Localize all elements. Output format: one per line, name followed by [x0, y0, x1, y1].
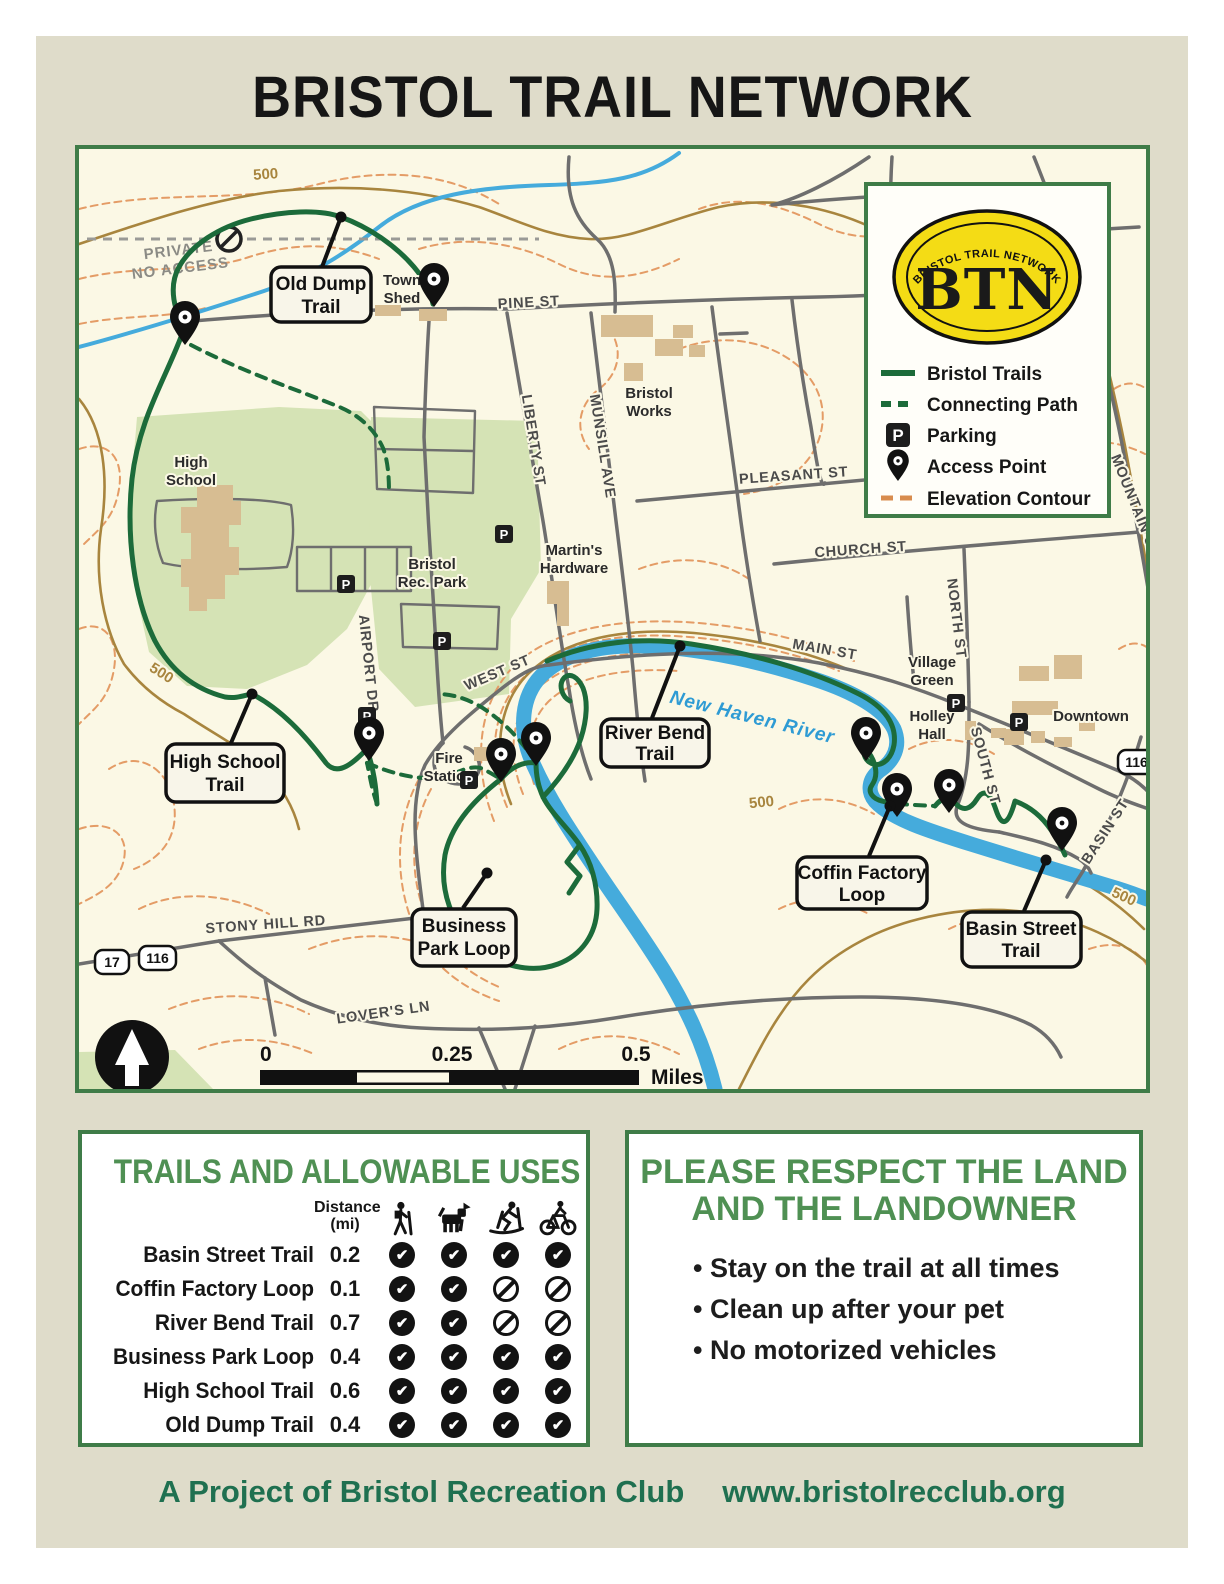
svg-text:P: P [952, 696, 961, 711]
trails-uses-box: TRAILS AND ALLOWABLE USES Distance (mi) [78, 1130, 590, 1447]
svg-text:Fire: Fire [435, 750, 463, 767]
svg-text:Martin's: Martin's [546, 542, 603, 559]
svg-text:Park Loop: Park Loop [418, 939, 511, 960]
svg-text:Hardware: Hardware [540, 560, 608, 577]
use-mark [545, 1412, 571, 1438]
munsill-ave-label: MUNSILL AVE [586, 393, 618, 499]
parking-icon: P [1010, 713, 1028, 731]
north-arrow [95, 1020, 169, 1089]
svg-text:Works: Works [626, 403, 672, 420]
svg-text:P: P [500, 527, 509, 542]
svg-text:Parking: Parking [927, 426, 997, 447]
svg-text:P: P [892, 426, 903, 445]
svg-text:Hall: Hall [918, 726, 946, 743]
table-row-name: Business Park Loop [107, 1344, 314, 1370]
parking-icon: P [947, 694, 965, 712]
cross-country-skiing-icon [480, 1197, 532, 1237]
access-point-pin [486, 738, 516, 782]
svg-text:Coffin Factory: Coffin Factory [798, 863, 927, 884]
svg-text:Trail: Trail [635, 744, 674, 765]
svg-text:Loop: Loop [839, 885, 885, 906]
svg-text:Elevation Contour: Elevation Contour [927, 489, 1091, 510]
svg-text:School: School [166, 472, 216, 489]
footer: A Project of Bristol Recreation Club www… [36, 1474, 1188, 1510]
route-116-badge: 116 [139, 946, 176, 970]
use-mark [545, 1310, 571, 1336]
hiking-icon [376, 1197, 428, 1237]
respect-box-heading: PLEASE RESPECT THE LAND AND THE LANDOWNE… [629, 1154, 1139, 1227]
svg-text:River Bend: River Bend [605, 723, 705, 744]
use-mark [441, 1276, 467, 1302]
use-mark [493, 1310, 519, 1336]
svg-text:Business: Business [422, 916, 506, 937]
svg-text:Basin Street: Basin Street [966, 919, 1078, 940]
route-116-badge: 116 [1118, 750, 1146, 774]
use-mark [493, 1276, 519, 1302]
trail-map: PRIVATE NO ACCESS [75, 145, 1150, 1093]
poster-title: BRISTOL TRAIL NETWORK [36, 64, 1188, 131]
trail-map-svg: PRIVATE NO ACCESS [79, 149, 1146, 1089]
poster-page: BRISTOL TRAIL NETWORK [0, 0, 1224, 1584]
table-row-name: River Bend Trail [107, 1310, 314, 1336]
parking-icon: P [886, 423, 910, 447]
btn-logo-acronym: BTN [915, 257, 1058, 323]
access-point-pin [851, 717, 881, 761]
list-item: No motorized vehicles [693, 1335, 1139, 1366]
table-row-name: Basin Street Trail [107, 1242, 314, 1268]
list-item: Clean up after your pet [693, 1294, 1139, 1325]
svg-text:P: P [1015, 715, 1024, 730]
pine-st-label: PINE ST [497, 293, 560, 312]
poster-title-text: BRISTOL TRAIL NETWORK [252, 64, 973, 131]
svg-text:Village: Village [908, 654, 956, 671]
svg-text:500: 500 [748, 793, 775, 813]
map-legend: BRISTOL TRAIL NETWORK BTN Bristol Trails… [866, 184, 1109, 516]
scale-bar: 0 0.25 0.5 Miles [260, 1043, 704, 1089]
use-mark [389, 1242, 415, 1268]
svg-text:Rec. Park: Rec. Park [398, 574, 467, 591]
svg-text:P: P [438, 634, 447, 649]
svg-text:116: 116 [146, 950, 169, 966]
svg-text:Trail: Trail [1001, 941, 1040, 962]
svg-text:Trail: Trail [205, 775, 244, 796]
svg-text:P: P [465, 773, 474, 788]
park-areas [79, 407, 541, 1089]
btn-logo: BRISTOL TRAIL NETWORK BTN [894, 211, 1080, 343]
svg-text:Green: Green [910, 672, 953, 689]
parking-icon: P [433, 632, 451, 650]
use-mark [441, 1412, 467, 1438]
old-dump-trail-callout: Old Dump Trail [271, 212, 371, 323]
svg-text:Trail: Trail [301, 297, 340, 318]
svg-text:Bristol: Bristol [625, 385, 673, 402]
footer-credit: A Project of Bristol Recreation Club [158, 1474, 684, 1510]
svg-text:P: P [342, 577, 351, 592]
downtown-building [1054, 655, 1082, 679]
svg-text:Access Point: Access Point [927, 457, 1047, 478]
table-row-name: High School Trail [107, 1378, 314, 1404]
uses-box-heading: TRAILS AND ALLOWABLE USES [82, 1154, 586, 1191]
bristol-works-building [601, 315, 653, 337]
svg-text:116: 116 [1125, 754, 1146, 770]
parking-icon: P [495, 525, 513, 543]
respect-rules-list: Stay on the trail at all times Clean up … [693, 1253, 1139, 1366]
svg-text:Bristol Trails: Bristol Trails [927, 364, 1042, 385]
svg-text:500: 500 [253, 165, 279, 184]
poster: BRISTOL TRAIL NETWORK [36, 36, 1188, 1548]
biking-icon [532, 1197, 584, 1237]
use-mark [493, 1344, 519, 1370]
use-mark [441, 1310, 467, 1336]
basin-st-label: BASIN ST [1079, 796, 1133, 867]
parking-icon: P [460, 771, 478, 789]
use-mark [493, 1412, 519, 1438]
business-park-loop-callout: Business Park Loop [412, 868, 516, 967]
use-mark [389, 1412, 415, 1438]
svg-text:Old Dump: Old Dump [276, 274, 367, 295]
svg-text:17: 17 [104, 954, 120, 970]
access-point-pin [170, 301, 200, 345]
use-mark [441, 1378, 467, 1404]
use-mark [493, 1378, 519, 1404]
use-mark [441, 1242, 467, 1268]
parking-icon: P [337, 575, 355, 593]
svg-text:0.5: 0.5 [621, 1043, 651, 1066]
table-row-name: Coffin Factory Loop [107, 1276, 314, 1302]
dog-walking-icon [428, 1197, 480, 1237]
svg-text:Connecting Path: Connecting Path [927, 395, 1078, 416]
church-st-label: CHURCH ST [814, 539, 907, 561]
use-mark [389, 1378, 415, 1404]
svg-text:High: High [174, 454, 207, 471]
respect-box: PLEASE RESPECT THE LAND AND THE LANDOWNE… [625, 1130, 1143, 1447]
use-mark [389, 1310, 415, 1336]
svg-text:0: 0 [260, 1043, 272, 1066]
use-mark [545, 1242, 571, 1268]
martins-hardware-building [547, 581, 569, 626]
route-17-badge: 17 [95, 950, 129, 974]
svg-text:0.25: 0.25 [432, 1043, 473, 1066]
use-mark [441, 1344, 467, 1370]
access-point-pin [419, 263, 449, 307]
distance-header: Distance (mi) [314, 1200, 376, 1234]
use-mark [545, 1344, 571, 1370]
table-row-name: Old Dump Trail [107, 1412, 314, 1438]
svg-text:Miles: Miles [651, 1066, 704, 1089]
use-mark [493, 1242, 519, 1268]
use-mark [545, 1276, 571, 1302]
list-item: Stay on the trail at all times [693, 1253, 1139, 1284]
use-mark [545, 1378, 571, 1404]
svg-text:Bristol: Bristol [408, 556, 456, 573]
footer-website: www.bristolrecclub.org [722, 1474, 1065, 1510]
svg-text:Downtown: Downtown [1053, 708, 1129, 725]
svg-text:High School: High School [170, 752, 281, 773]
svg-text:Town: Town [383, 272, 421, 289]
svg-text:Shed: Shed [384, 290, 421, 307]
uses-table: Distance (mi) [96, 1197, 586, 1441]
use-mark [389, 1344, 415, 1370]
stony-hill-rd-label: STONY HILL RD [205, 913, 327, 937]
use-mark [389, 1276, 415, 1302]
